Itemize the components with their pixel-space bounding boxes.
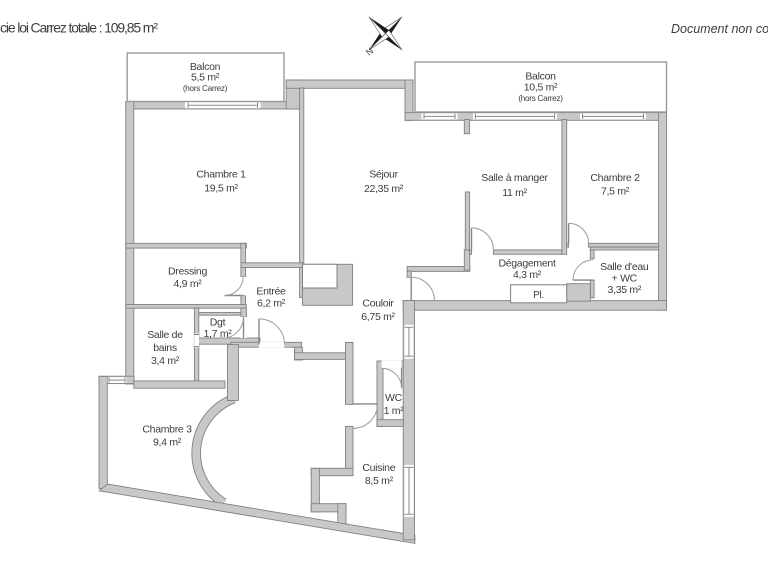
svg-text:7,5 m²: 7,5 m² [601, 186, 630, 198]
svg-text:Chambre 3: Chambre 3 [142, 424, 192, 436]
svg-text:Pl.: Pl. [533, 290, 544, 301]
svg-text:4,3 m²: 4,3 m² [513, 269, 542, 281]
svg-text:Salle de: Salle de [147, 329, 183, 341]
svg-text:11 m²: 11 m² [502, 187, 527, 199]
svg-text:1,7 m²: 1,7 m² [204, 328, 233, 340]
svg-text:6,2 m²: 6,2 m² [257, 298, 286, 310]
svg-text:Chambre 2: Chambre 2 [590, 172, 640, 184]
svg-text:Salle à manger: Salle à manger [481, 172, 548, 184]
svg-text:(hors Carrez): (hors Carrez) [183, 84, 228, 93]
svg-text:3,35 m²: 3,35 m² [608, 284, 642, 296]
svg-text:9,4 m²: 9,4 m² [153, 437, 182, 449]
svg-text:8,5 m²: 8,5 m² [365, 475, 394, 487]
svg-text:Couloir: Couloir [362, 298, 394, 310]
svg-text:19,5 m²: 19,5 m² [204, 183, 238, 195]
svg-text:5,5 m²: 5,5 m² [191, 72, 220, 84]
svg-text:WC: WC [385, 392, 403, 404]
svg-text:cie loi Carrez totale : 109,8: cie loi Carrez totale : 109,85 m² [0, 20, 158, 36]
svg-text:Dégagement: Dégagement [498, 257, 556, 269]
svg-text:Entrée: Entrée [256, 286, 286, 298]
svg-text:4,9 m²: 4,9 m² [174, 278, 203, 290]
svg-text:1 m²: 1 m² [384, 405, 405, 417]
svg-text:Dressing: Dressing [168, 266, 207, 278]
svg-text:Document non contractuel: Document non contractuel [671, 22, 768, 36]
svg-text:Cuisine: Cuisine [362, 462, 395, 474]
svg-text:3,4 m²: 3,4 m² [151, 355, 180, 367]
svg-text:10,5 m²: 10,5 m² [524, 82, 558, 94]
svg-text:Salle d'eau: Salle d'eau [600, 261, 649, 273]
svg-text:Dgt: Dgt [210, 317, 226, 329]
svg-text:22,35 m²: 22,35 m² [364, 183, 404, 195]
svg-text:Séjour: Séjour [369, 169, 398, 181]
svg-text:6,75 m²: 6,75 m² [361, 311, 395, 323]
svg-text:+ WC: + WC [612, 273, 638, 285]
svg-text:(hors Carrez): (hors Carrez) [518, 94, 563, 103]
svg-text:Chambre 1: Chambre 1 [196, 169, 246, 181]
svg-text:bains: bains [153, 342, 177, 354]
